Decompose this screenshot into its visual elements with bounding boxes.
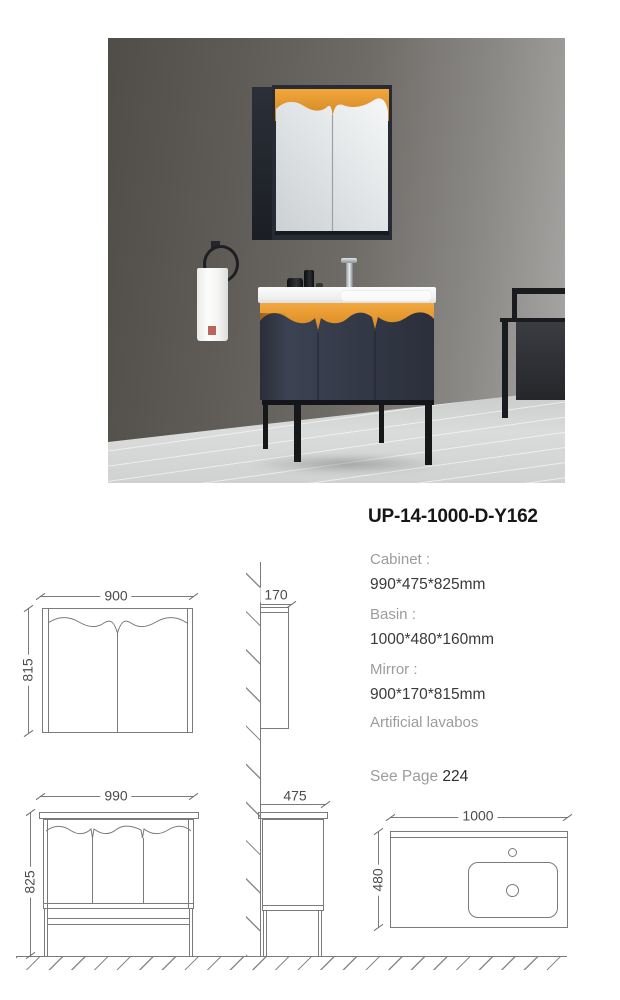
vanity-body	[260, 303, 434, 400]
cabinet-depth-dim-line	[260, 804, 326, 805]
cabinet-front-door-divider	[143, 838, 144, 904]
see-page: See Page 224	[370, 768, 468, 786]
drain-hole	[506, 884, 519, 897]
cabinet-size: 990*475*825mm	[370, 576, 485, 594]
mirror-side-outline	[260, 607, 289, 729]
chair-frame-upright	[512, 288, 517, 322]
faucet-spout	[341, 258, 357, 263]
chair	[498, 286, 565, 420]
chair-seat	[516, 322, 565, 400]
vanity-cabinet	[258, 256, 438, 468]
cabinet-front-door-divider	[92, 838, 93, 904]
cabinet-front-wave	[46, 823, 191, 845]
cabinet-depth-dim: 475	[279, 788, 310, 803]
mirror-width-dim: 900	[100, 588, 131, 603]
cabinet-side-body	[262, 819, 324, 911]
see-page-label: See Page	[370, 768, 438, 785]
cabinet-side-bottom-rail	[262, 905, 324, 906]
ground-hatching	[16, 957, 567, 970]
mirror-size: 900*170*815mm	[370, 686, 485, 704]
product-code: UP-14-1000-D-Y162	[368, 506, 538, 528]
cabinet-height-dim: 825	[22, 866, 37, 897]
cabinet-front-leg	[189, 909, 193, 956]
mirror-front-door-divider	[117, 633, 118, 732]
vanity-leg-back-right	[379, 405, 384, 443]
faucet	[346, 261, 353, 289]
product-photo	[108, 38, 565, 483]
basin-back-edge	[390, 837, 568, 838]
chair-leg	[502, 318, 508, 418]
wall-hatching	[246, 562, 260, 956]
cabinet-front-bottom-rail	[43, 903, 194, 904]
cabinet-width-dim: 990	[100, 788, 131, 803]
see-page-number: 224	[442, 768, 468, 785]
cabinet-front-stretcher	[47, 918, 190, 925]
faucet-hole	[508, 848, 517, 857]
cabinet-side-leg	[263, 911, 267, 956]
cabinet-side-countertop	[258, 812, 328, 819]
mirror-height-dim: 815	[20, 654, 35, 685]
mirror-depth-dim-line	[260, 604, 291, 605]
basin-depth-dim: 480	[370, 864, 385, 895]
basin-label: Basin :	[370, 606, 416, 623]
cabinet-side-leg	[318, 911, 322, 956]
mirror-cabinet-front	[272, 85, 392, 240]
mirror-side-top-rail	[260, 612, 289, 613]
towel	[197, 268, 228, 341]
mirror-depth-dim: 170	[260, 587, 291, 602]
material-note: Artificial lavabos	[370, 714, 478, 731]
mirror-cabinet	[252, 85, 392, 240]
basin-size: 1000*480*160mm	[370, 631, 494, 649]
basin-outline	[340, 290, 432, 302]
vanity-countertop	[258, 287, 436, 303]
cabinet-front-leg	[44, 909, 48, 956]
cabinet-label: Cabinet :	[370, 551, 430, 568]
basin-width-dim: 1000	[458, 808, 497, 823]
towel-logo	[208, 326, 216, 335]
vanity-floor-shadow	[250, 454, 444, 474]
vanity-leg-frame	[262, 400, 434, 405]
vanity-leg-back-left	[263, 405, 268, 449]
mirror-label: Mirror :	[370, 661, 418, 678]
mirror-front-stile-right	[187, 608, 188, 733]
catalog-page: UP-14-1000-D-Y162 Cabinet : 990*475*825m…	[0, 0, 620, 1000]
cabinet-front-countertop	[39, 812, 199, 819]
chair-frame-bar	[512, 288, 565, 294]
mirror-cabinet-side	[252, 87, 272, 240]
